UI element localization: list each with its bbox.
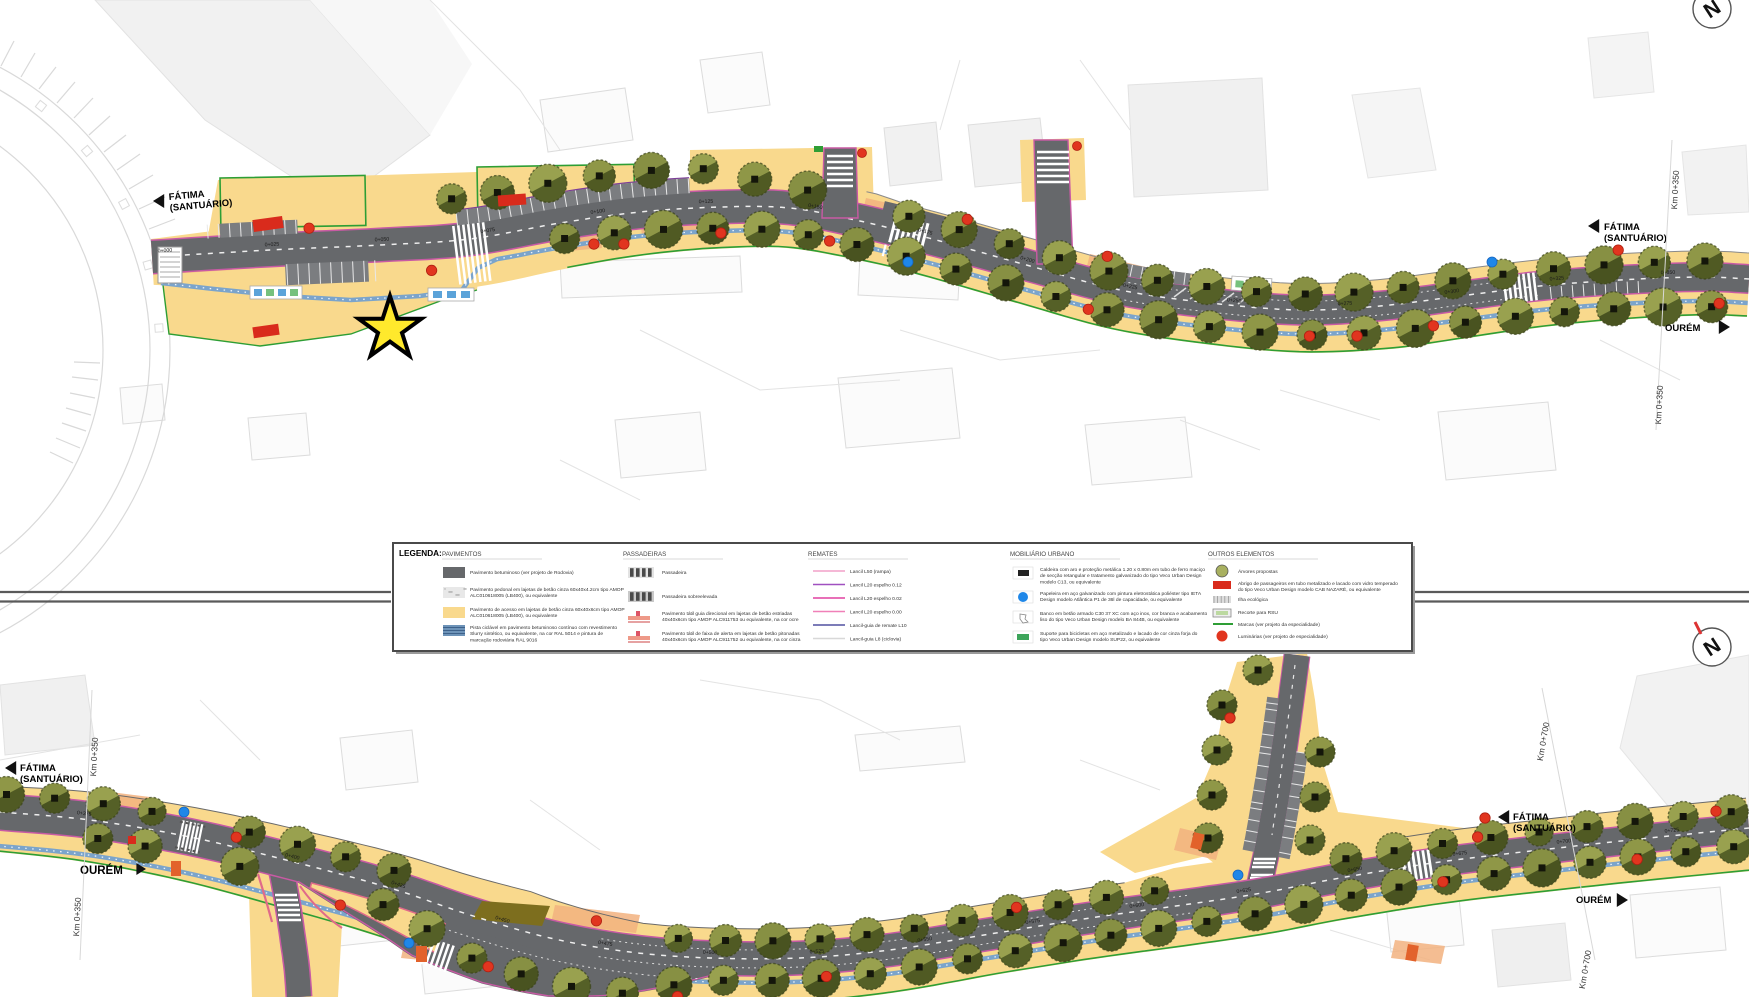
svg-text:PAVIMENTOS: PAVIMENTOS bbox=[442, 551, 482, 558]
svg-text:Lancil L20 espelho 0.02: Lancil L20 espelho 0.02 bbox=[850, 596, 902, 602]
svg-text:(SANTUÁRIO): (SANTUÁRIO) bbox=[1513, 823, 1576, 834]
svg-text:Banco em betão armado C30 37 X: Banco em betão armado C30 37 XC com aço … bbox=[1040, 611, 1207, 617]
svg-text:liso do tipo Veco Urban Design: liso do tipo Veco Urban Design modelo BA… bbox=[1040, 617, 1179, 623]
svg-text:Pavimento tátil guia direciona: Pavimento tátil guia direcional em lajet… bbox=[662, 611, 793, 617]
svg-text:Slurry sintético, ou equivalen: Slurry sintético, ou equivalente, na cor… bbox=[470, 631, 603, 637]
svg-text:Lancil L50 (rampa): Lancil L50 (rampa) bbox=[850, 569, 891, 575]
svg-text:Lancil L20 espelho 0.12: Lancil L20 espelho 0.12 bbox=[850, 583, 902, 589]
svg-text:0+275: 0+275 bbox=[1338, 301, 1353, 308]
svg-text:Abrigo de passageiros em tubo: Abrigo de passageiros em tubo metalizado… bbox=[1238, 581, 1398, 587]
svg-text:OURÉM: OURÉM bbox=[80, 864, 123, 877]
svg-text:de secção retangular e tratame: de secção retangular e tratamento galvan… bbox=[1040, 573, 1202, 579]
svg-text:MOBILIÁRIO URBANO: MOBILIÁRIO URBANO bbox=[1010, 551, 1074, 558]
svg-text:tipo Veco Urban Design modelo: tipo Veco Urban Design modelo SUP22, ou … bbox=[1040, 637, 1160, 643]
svg-text:Caldeira com aro e proteção me: Caldeira com aro e proteção metálica 1.2… bbox=[1040, 567, 1205, 573]
svg-text:FÁTIMA: FÁTIMA bbox=[20, 763, 56, 774]
svg-text:Suporte para bicicletas em aço: Suporte para bicicletas em aço metalizad… bbox=[1040, 631, 1198, 637]
svg-text:0+050: 0+050 bbox=[375, 237, 390, 244]
svg-text:Ilha ecológica: Ilha ecológica bbox=[1238, 597, 1268, 603]
svg-text:OURÉM: OURÉM bbox=[1665, 323, 1700, 334]
svg-text:0+000: 0+000 bbox=[158, 248, 173, 255]
svg-text:Pavimento pedonal em lajetas d: Pavimento pedonal em lajetas de betão ci… bbox=[470, 587, 624, 593]
svg-text:Pista ciclável em pavimento be: Pista ciclável em pavimento betuminoso c… bbox=[470, 625, 617, 631]
svg-text:Pavimento tátil de faixa de al: Pavimento tátil de faixa de alerta em la… bbox=[662, 631, 800, 637]
svg-text:Km 0+350: Km 0+350 bbox=[1653, 385, 1665, 425]
svg-text:(SANTUÁRIO): (SANTUÁRIO) bbox=[20, 774, 83, 785]
svg-text:OURÉM: OURÉM bbox=[1576, 895, 1611, 906]
svg-text:marcação rodoviária RAL 9016: marcação rodoviária RAL 9016 bbox=[470, 637, 538, 643]
svg-text:do tipo Veco Urban Design mode: do tipo Veco Urban Design modelo CAB NAZ… bbox=[1238, 586, 1381, 593]
svg-text:Papeleira em aço galvanizado c: Papeleira em aço galvanizado com pintura… bbox=[1040, 591, 1202, 597]
svg-text:0+125: 0+125 bbox=[699, 199, 714, 206]
svg-text:40x40x6cm tipo AMOP ALC911753: 40x40x6cm tipo AMOP ALC911753 ou equival… bbox=[662, 617, 799, 623]
svg-text:Passadeira sobreelevada: Passadeira sobreelevada bbox=[662, 594, 717, 600]
svg-text:0+025: 0+025 bbox=[265, 242, 280, 249]
svg-text:Passadeira: Passadeira bbox=[662, 570, 687, 576]
svg-text:0+525: 0+525 bbox=[809, 948, 824, 955]
svg-text:Lancil-guia L8 (ciclovia): Lancil-guia L8 (ciclovia) bbox=[850, 637, 901, 643]
svg-text:0+325: 0+325 bbox=[1549, 275, 1564, 282]
svg-text:LEGENDA:: LEGENDA: bbox=[399, 549, 442, 558]
svg-text:40x40x6cm tipo AMOP ALC911752: 40x40x6cm tipo AMOP ALC911752 ou equival… bbox=[662, 637, 801, 643]
svg-text:Lancil L20 espelho 0.00: Lancil L20 espelho 0.00 bbox=[850, 610, 902, 616]
svg-text:modelo C13, ou equivalente: modelo C13, ou equivalente bbox=[1040, 579, 1101, 585]
svg-text:Árvores propostas: Árvores propostas bbox=[1238, 568, 1278, 575]
svg-text:Luminárias (ver projeto de esp: Luminárias (ver projeto de especialidade… bbox=[1238, 634, 1328, 640]
svg-text:ALC010618005 (LB400), ou equiv: ALC010618005 (LB400), ou equivalente bbox=[470, 613, 558, 619]
svg-text:Marcas (ver projeto da especia: Marcas (ver projeto da especialidade) bbox=[1238, 622, 1320, 628]
svg-text:Lancil-guia de remate L10: Lancil-guia de remate L10 bbox=[850, 623, 907, 629]
svg-text:FÁTIMA: FÁTIMA bbox=[1513, 812, 1549, 823]
svg-text:Pavimento betuminoso (ver proj: Pavimento betuminoso (ver projeto de Rod… bbox=[470, 570, 574, 576]
svg-text:Km 0+350: Km 0+350 bbox=[88, 737, 100, 777]
svg-text:OUTROS ELEMENTOS: OUTROS ELEMENTOS bbox=[1208, 551, 1274, 558]
svg-text:REMATES: REMATES bbox=[808, 551, 837, 558]
svg-text:(SANTUÁRIO): (SANTUÁRIO) bbox=[1604, 233, 1667, 244]
svg-text:Km 0+350: Km 0+350 bbox=[71, 897, 83, 937]
svg-text:Recorte para RSU: Recorte para RSU bbox=[1238, 610, 1278, 616]
svg-text:Pavimento de acesso em lajetas: Pavimento de acesso em lajetas de betão … bbox=[470, 607, 625, 613]
svg-text:ALC010618005 (LB400), ou equiv: ALC010618005 (LB400), ou equivalente bbox=[470, 593, 558, 599]
svg-text:FÁTIMA: FÁTIMA bbox=[1604, 222, 1640, 233]
svg-text:Km 0+350: Km 0+350 bbox=[1669, 170, 1681, 210]
svg-text:0+350: 0+350 bbox=[1661, 270, 1676, 277]
svg-text:0+500: 0+500 bbox=[703, 950, 718, 957]
svg-text:Design modelo Atlântica P1 de: Design modelo Atlântica P1 de 36l de cap… bbox=[1040, 597, 1182, 603]
svg-text:PASSADEIRAS: PASSADEIRAS bbox=[623, 551, 666, 558]
